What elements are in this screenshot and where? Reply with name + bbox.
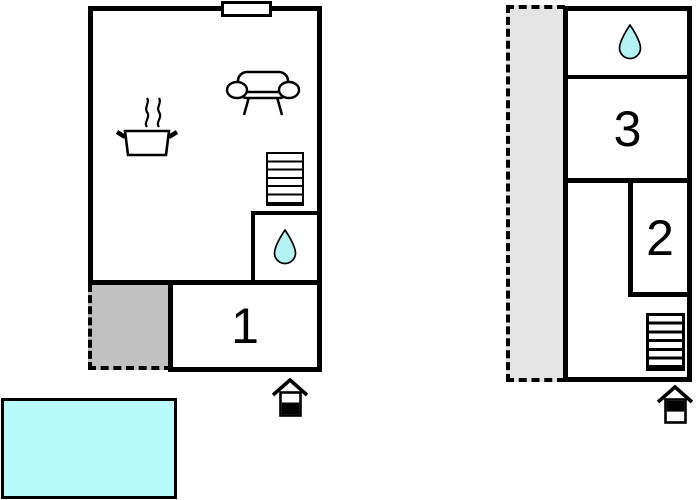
stairs-icon xyxy=(646,313,685,371)
wall-bottom xyxy=(563,377,692,382)
wall-left xyxy=(563,6,568,382)
room-2-label: 2 xyxy=(633,183,687,292)
entrance-house-icon xyxy=(656,384,694,426)
wall-room2-bottom xyxy=(628,292,690,297)
wall-bathroom-top xyxy=(251,211,317,215)
terrace-area xyxy=(88,284,172,370)
wall-top xyxy=(563,6,692,11)
sofa-icon xyxy=(225,69,301,119)
water-drop-icon xyxy=(272,229,298,265)
entrance-house-icon xyxy=(271,377,309,419)
stairs-icon xyxy=(266,152,304,206)
wall-left xyxy=(88,6,93,285)
cooking-pot-icon xyxy=(114,97,181,157)
floor-plan-canvas: 1 3 2 xyxy=(0,0,700,500)
wall-right xyxy=(687,6,692,382)
water-drop-icon xyxy=(617,24,643,60)
wall-top xyxy=(88,6,322,11)
room-1-label: 1 xyxy=(173,285,317,367)
pool xyxy=(1,398,177,499)
wall-right xyxy=(317,6,322,372)
wall-bathroom-left xyxy=(251,211,255,281)
room-3-label: 3 xyxy=(568,79,687,178)
balcony-area xyxy=(506,5,565,382)
chimney xyxy=(221,1,272,17)
wall-bottom xyxy=(168,367,322,372)
